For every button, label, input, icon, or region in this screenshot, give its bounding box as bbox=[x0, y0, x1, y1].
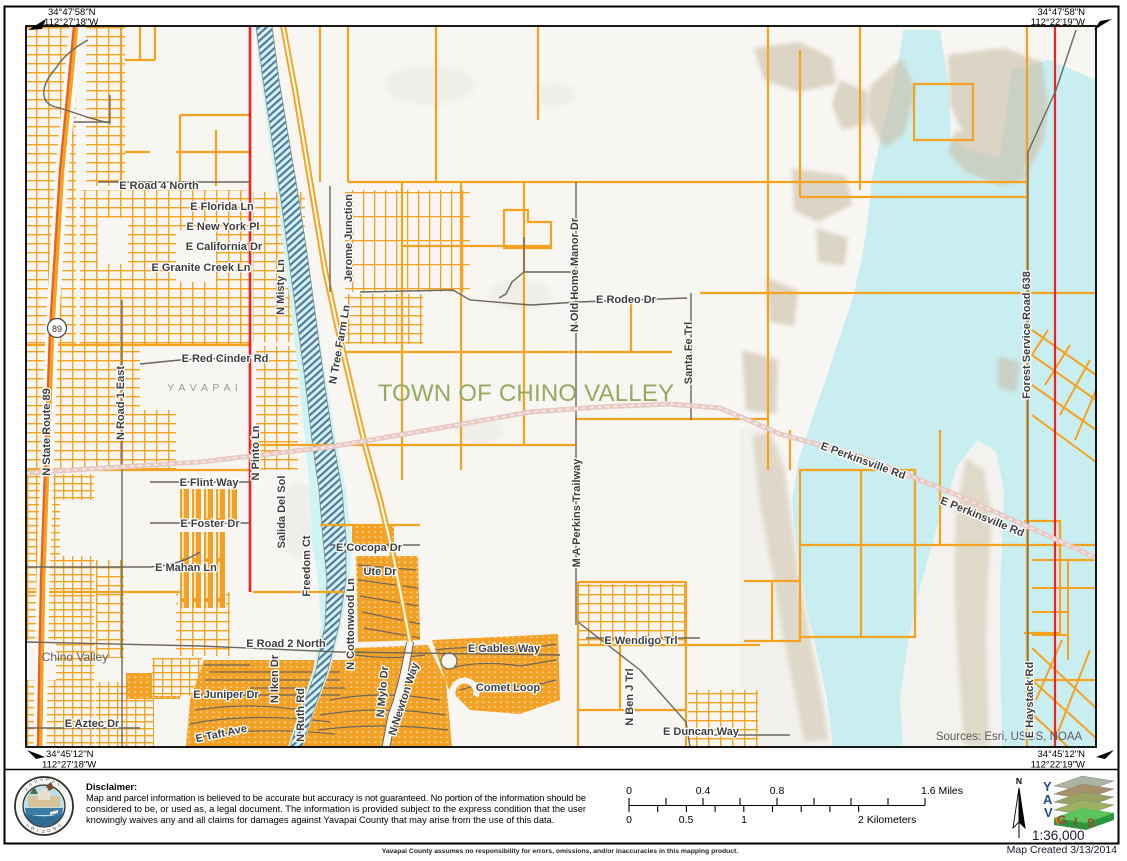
svg-text:1.6 Miles: 1.6 Miles bbox=[921, 785, 963, 797]
svg-text:N: N bbox=[1016, 776, 1022, 786]
svg-text:A: A bbox=[29, 782, 32, 787]
svg-text:I: I bbox=[58, 782, 59, 787]
svg-text:Map and parcel information is: Map and parcel information is believed t… bbox=[86, 793, 586, 803]
svg-text:E California Dr: E California Dr bbox=[186, 241, 263, 253]
svg-text:N Ruth Rd: N Ruth Rd bbox=[295, 688, 307, 742]
svg-text:N Ben J Trl: N Ben J Trl bbox=[624, 668, 636, 725]
svg-text:N Pinto Ln: N Pinto Ln bbox=[250, 425, 262, 480]
svg-text:E Wendigo Trl: E Wendigo Trl bbox=[604, 635, 677, 647]
svg-text:A: A bbox=[40, 777, 43, 782]
svg-text:0: 0 bbox=[626, 814, 632, 826]
svg-text:N Road 1 East: N Road 1 East bbox=[115, 366, 127, 440]
svg-text:Chino Valley: Chino Valley bbox=[42, 650, 108, 664]
svg-text:P: P bbox=[46, 777, 49, 782]
svg-text:S: S bbox=[1087, 816, 1095, 830]
svg-text:E Florida Ln: E Florida Ln bbox=[190, 201, 254, 213]
svg-text:1: 1 bbox=[741, 814, 747, 826]
svg-text:E Duncan Way: E Duncan Way bbox=[663, 726, 740, 738]
svg-text:Comet Loop: Comet Loop bbox=[476, 682, 540, 694]
svg-text:I: I bbox=[1074, 815, 1077, 829]
svg-text:Disclaimer:: Disclaimer: bbox=[86, 782, 137, 793]
svg-text:E Road 2 North: E Road 2 North bbox=[246, 638, 326, 650]
svg-text:2 Kilometers: 2 Kilometers bbox=[858, 814, 916, 826]
svg-text:89: 89 bbox=[52, 324, 62, 334]
svg-text:N Misty Ln: N Misty Ln bbox=[275, 259, 287, 315]
svg-text:0: 0 bbox=[626, 785, 632, 797]
svg-text:A: A bbox=[52, 779, 55, 784]
svg-text:Y: Y bbox=[25, 787, 28, 792]
svg-text:34°45'12"N: 34°45'12"N bbox=[1037, 749, 1085, 760]
svg-text:I: I bbox=[37, 828, 38, 833]
svg-text:G: G bbox=[1057, 813, 1066, 827]
svg-text:N State Route 89: N State Route 89 bbox=[41, 388, 53, 475]
svg-text:considered to be, or used as,: considered to be, or used as, a legal do… bbox=[86, 804, 586, 814]
svg-text:Forest Service Road 638: Forest Service Road 638 bbox=[1021, 271, 1033, 399]
svg-text:Freedom Ct: Freedom Ct bbox=[301, 535, 313, 596]
svg-text:112°27'18"W: 112°27'18"W bbox=[44, 17, 98, 28]
svg-text:E Rodeo Dr: E Rodeo Dr bbox=[596, 294, 657, 306]
svg-text:E Granite Creek Ln: E Granite Creek Ln bbox=[151, 262, 250, 274]
svg-text:E Road 4 North: E Road 4 North bbox=[119, 180, 199, 192]
svg-text:Salida Del Sol: Salida Del Sol bbox=[276, 476, 288, 549]
svg-text:E Red Cinder Rd: E Red Cinder Rd bbox=[182, 353, 269, 365]
svg-text:M A Perkins Trailway: M A Perkins Trailway bbox=[571, 458, 583, 568]
svg-text:V: V bbox=[34, 779, 37, 784]
svg-text:Santa Fe Trl: Santa Fe Trl bbox=[683, 322, 695, 384]
svg-text:TOWN OF CHINO VALLEY: TOWN OF CHINO VALLEY bbox=[378, 380, 675, 407]
svg-text:E Aztec Dr: E Aztec Dr bbox=[65, 718, 120, 730]
svg-text:E Cocopa Dr: E Cocopa Dr bbox=[336, 542, 403, 554]
svg-text:knowingly waives any and all c: knowingly waives any and all claims for … bbox=[86, 815, 554, 825]
svg-text:N: N bbox=[53, 826, 56, 831]
svg-text:E Gables Way: E Gables Way bbox=[468, 643, 541, 655]
svg-text:E Haystack Rd: E Haystack Rd bbox=[1024, 662, 1036, 738]
svg-text:1:36,000: 1:36,000 bbox=[1032, 828, 1085, 843]
svg-text:N Iken Dr: N Iken Dr bbox=[269, 654, 281, 703]
svg-text:A: A bbox=[58, 823, 61, 828]
svg-text:E Juniper Dr: E Juniper Dr bbox=[193, 689, 259, 701]
svg-text:N Old Home Manor Dr: N Old Home Manor Dr bbox=[569, 217, 581, 332]
svg-text:Yavapai County assumes no resp: Yavapai County assumes no responsibility… bbox=[382, 848, 739, 855]
svg-text:E New York Pl: E New York Pl bbox=[187, 221, 260, 233]
svg-text:E Mahan Ln: E Mahan Ln bbox=[155, 562, 217, 574]
svg-text:N Cottonwood Ln: N Cottonwood Ln bbox=[345, 578, 357, 670]
svg-text:0.4: 0.4 bbox=[696, 785, 711, 797]
svg-text:V: V bbox=[1044, 805, 1053, 820]
svg-text:112°22'19"W: 112°22'19"W bbox=[1031, 17, 1085, 28]
svg-text:0.8: 0.8 bbox=[770, 785, 785, 797]
svg-text:E Foster Dr: E Foster Dr bbox=[180, 518, 240, 530]
svg-text:A: A bbox=[26, 823, 29, 828]
svg-text:Y A V A P A I: Y A V A P A I bbox=[167, 382, 239, 394]
svg-text:Map Created 3/13/2014: Map Created 3/13/2014 bbox=[1007, 844, 1117, 856]
svg-text:O: O bbox=[47, 828, 51, 833]
svg-text:Ute Dr: Ute Dr bbox=[363, 566, 397, 578]
svg-text:E Flint Way: E Flint Way bbox=[180, 477, 240, 489]
svg-text:34°45'12"N: 34°45'12"N bbox=[46, 749, 94, 760]
svg-text:Z: Z bbox=[42, 829, 45, 834]
svg-text:Jerome Junction: Jerome Junction bbox=[343, 194, 355, 282]
svg-text:0.5: 0.5 bbox=[679, 814, 694, 826]
svg-text:Sources: Esri, USGS, NOAA: Sources: Esri, USGS, NOAA bbox=[936, 731, 1083, 743]
